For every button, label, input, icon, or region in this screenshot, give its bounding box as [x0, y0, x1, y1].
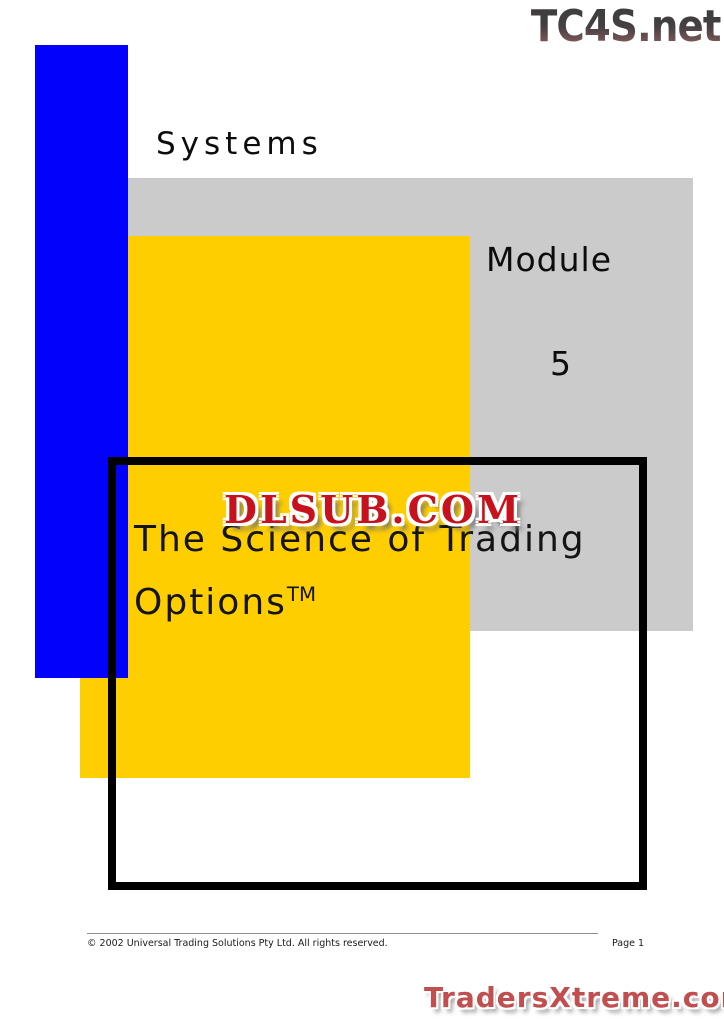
title-line-2: Options — [134, 582, 287, 623]
footer-copyright: © 2002 Universal Trading Solutions Pty L… — [87, 938, 388, 949]
page-number: Page 1 — [612, 938, 644, 949]
tradersxtreme-watermark-logo: TradersXtreme.com — [424, 981, 724, 1014]
footer-divider — [87, 933, 598, 934]
tc4s-watermark-logo: TC4S.net — [531, 1, 721, 52]
trademark-superscript: TM — [287, 583, 316, 606]
module-number: 5 — [550, 344, 571, 383]
module-heading: Module — [486, 240, 612, 279]
document-page: Systems Module 5 The Science of TradingO… — [0, 0, 724, 1024]
dlsub-watermark-logo: DLSUB.COM — [224, 487, 522, 532]
systems-heading: Systems — [156, 126, 323, 162]
